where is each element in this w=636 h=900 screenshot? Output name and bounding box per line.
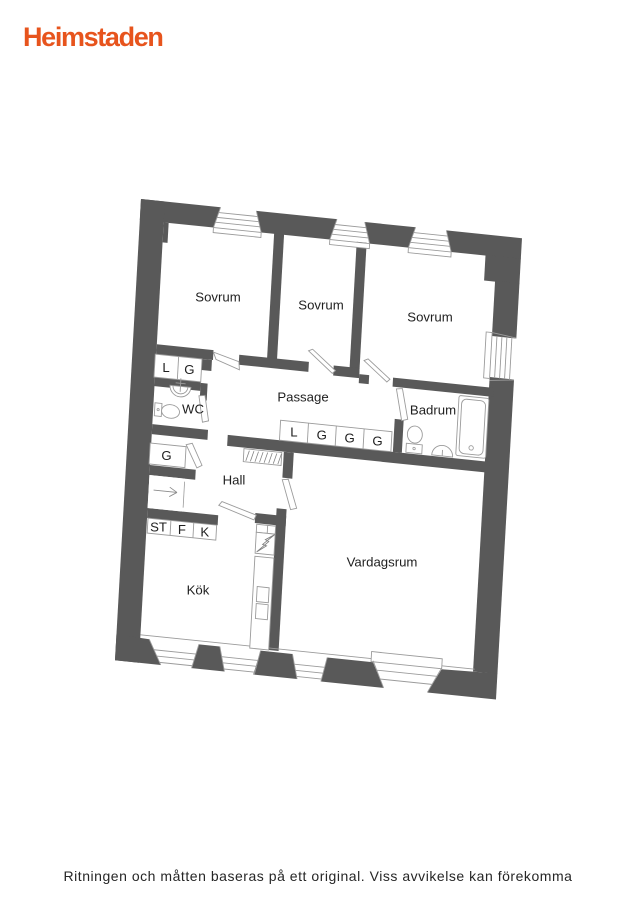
svg-text:Kök: Kök bbox=[187, 583, 210, 598]
svg-text:L: L bbox=[290, 425, 297, 440]
svg-text:G: G bbox=[317, 428, 327, 443]
svg-text:G: G bbox=[344, 430, 354, 445]
svg-text:Hall: Hall bbox=[223, 473, 246, 488]
svg-text:G: G bbox=[161, 448, 171, 463]
svg-text:Sovrum: Sovrum bbox=[298, 298, 343, 313]
svg-text:WC: WC bbox=[182, 402, 204, 417]
svg-text:Badrum: Badrum bbox=[410, 403, 456, 418]
svg-text:K: K bbox=[200, 525, 209, 540]
svg-text:Passage: Passage bbox=[277, 390, 328, 405]
svg-text:Vardagsrum: Vardagsrum bbox=[347, 555, 418, 570]
svg-text:G: G bbox=[184, 362, 194, 377]
svg-text:F: F bbox=[178, 522, 186, 537]
svg-text:Sovrum: Sovrum bbox=[407, 310, 452, 325]
svg-text:Sovrum: Sovrum bbox=[195, 290, 240, 305]
svg-text:ST: ST bbox=[150, 520, 167, 535]
svg-text:G: G bbox=[372, 433, 382, 448]
svg-text:L: L bbox=[162, 360, 169, 375]
